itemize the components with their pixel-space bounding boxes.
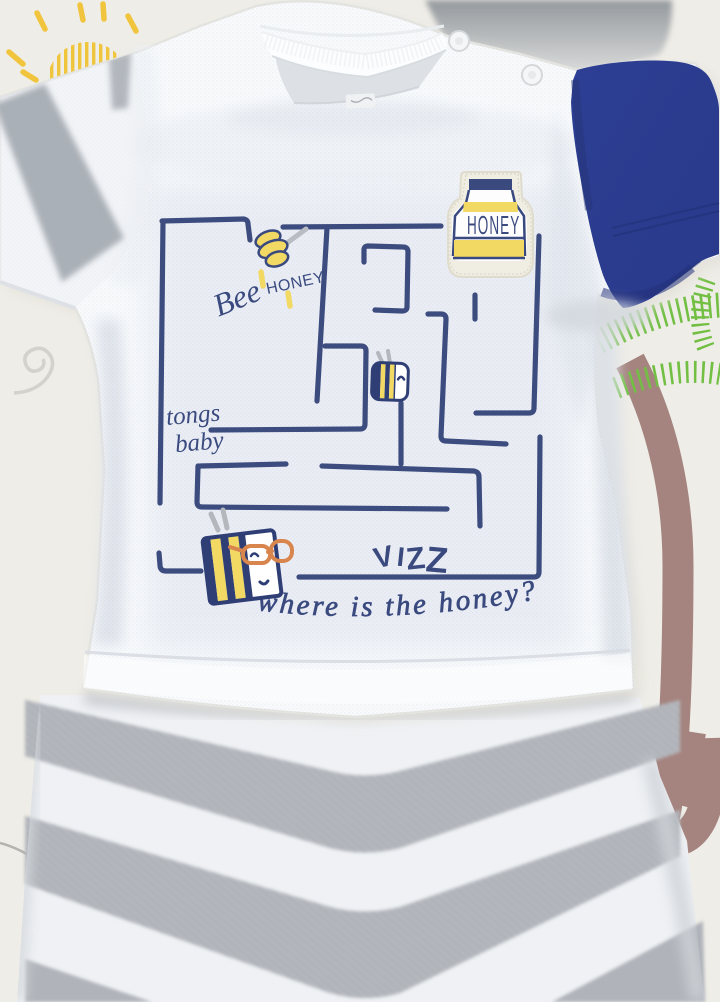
svg-text:Z: Z — [424, 538, 449, 581]
svg-text:baby: baby — [174, 427, 226, 458]
svg-text:Z: Z — [404, 540, 427, 577]
svg-text:tongs: tongs — [165, 399, 221, 431]
svg-text:HONEY: HONEY — [467, 211, 520, 240]
